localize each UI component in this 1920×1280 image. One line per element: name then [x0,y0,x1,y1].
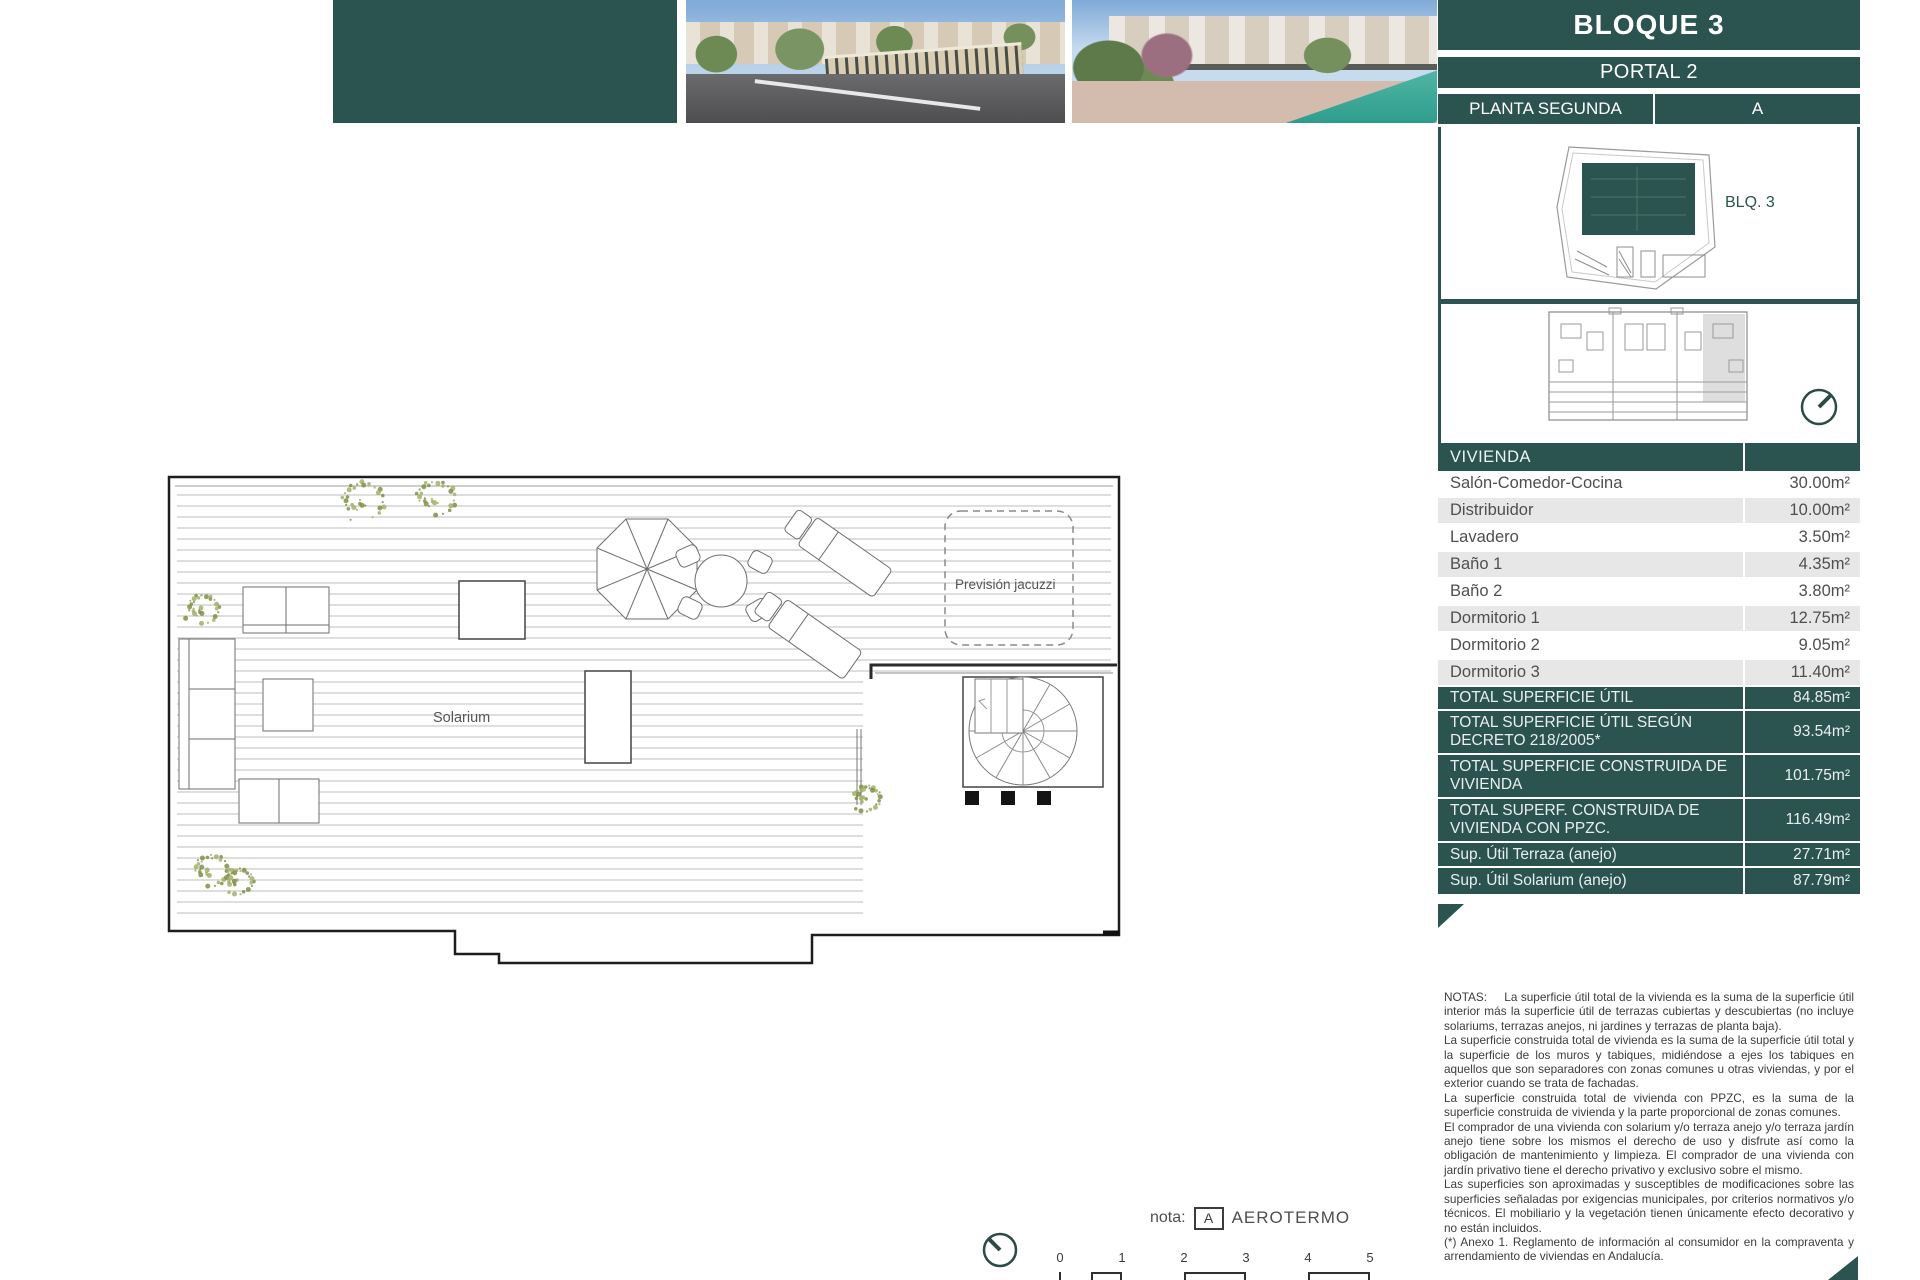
site-plan-drawing: BLQ. 3 [1441,127,1857,299]
keyplan-drawing [1441,304,1857,443]
solarium-label: Solarium [433,710,490,726]
table-row: Dormitorio 2 9.05m² [1438,633,1860,658]
highlighted-unit [1703,314,1745,402]
table-tail-triangle [1438,904,1464,928]
wall-segments [965,791,1051,805]
floor-plan-drawing: Previsión jacuzzi [165,473,1123,968]
table-row: Baño 1 4.35m² [1438,552,1860,577]
portal-title: PORTAL 2 [1438,57,1860,88]
table-row: Dormitorio 3 11.40m² [1438,660,1860,685]
nota-label: nota: [1150,1209,1186,1227]
table-total-row: TOTAL SUPERFICIE ÚTIL 84.85m² [1438,687,1860,709]
notes-block: NOTAS: La superficie útil total de la vi… [1444,990,1854,1264]
table-row: Distribuidor 10.00m² [1438,498,1860,523]
spiral-staircase [963,677,1103,787]
location-panel: BLQ. 3 [1438,127,1860,443]
keyplan-box [1441,304,1857,443]
table-row: Salón-Comedor-Cocina 30.00m² [1438,471,1860,496]
pool-photo [1072,0,1437,123]
scale-bar: 0 1 2 3 4 5 [1050,1250,1390,1280]
floor-unit-row: PLANTA SEGUNDA A [1438,94,1860,124]
block3-footprint [1582,163,1695,235]
block-callout: BLQ. 3 [1725,194,1775,211]
aerotermo-legend: nota: A AEROTERMO [1150,1205,1350,1231]
table-section-header: VIVIENDA [1438,443,1860,471]
unit-header: BLOQUE 3 PORTAL 2 PLANTA SEGUNDA A [1438,0,1860,124]
block-title: BLOQUE 3 [1438,0,1860,50]
table-row: Lavadero 3.50m² [1438,525,1860,550]
table-total-row: TOTAL SUPERF. CONSTRUIDA DE VIVIENDA CON… [1438,799,1860,841]
table-total-row: Sup. Útil Terraza (anejo) 27.71m² [1438,843,1860,866]
table-row: Baño 2 3.80m² [1438,579,1860,604]
header-teal-block [333,0,677,123]
street-entrance-photo [686,0,1065,123]
table-total-row: TOTAL SUPERFICIE ÚTIL SEGÚN DECRETO 218/… [1438,711,1860,753]
jacuzzi-label: Previsión jacuzzi [955,577,1056,592]
brochure-page: BLOQUE 3 PORTAL 2 PLANTA SEGUNDA A [0,0,1920,1280]
unit-letter: A [1655,94,1860,124]
site-plan-box: BLQ. 3 [1441,127,1857,304]
surface-table: VIVIENDA Salón-Comedor-Cocina 30.00m² Di… [1438,443,1860,894]
notes-title: NOTAS: [1444,990,1487,1004]
sun-lounger [751,506,892,680]
table-row: Dormitorio 1 12.75m² [1438,606,1860,631]
aerotermo-text: AEROTERMO [1232,1208,1351,1228]
solarium-furniture [179,581,631,823]
aerotermo-key: A [1194,1207,1224,1230]
table-total-row: TOTAL SUPERFICIE CONSTRUIDA DE VIVIENDA … [1438,755,1860,797]
photo-road [686,74,1065,123]
north-arrow-icon [980,1228,1022,1274]
floor-label: PLANTA SEGUNDA [1438,94,1653,124]
north-arrow-icon [1802,390,1836,424]
table-total-row: Sup. Útil Solarium (anejo) 87.79m² [1438,868,1860,894]
